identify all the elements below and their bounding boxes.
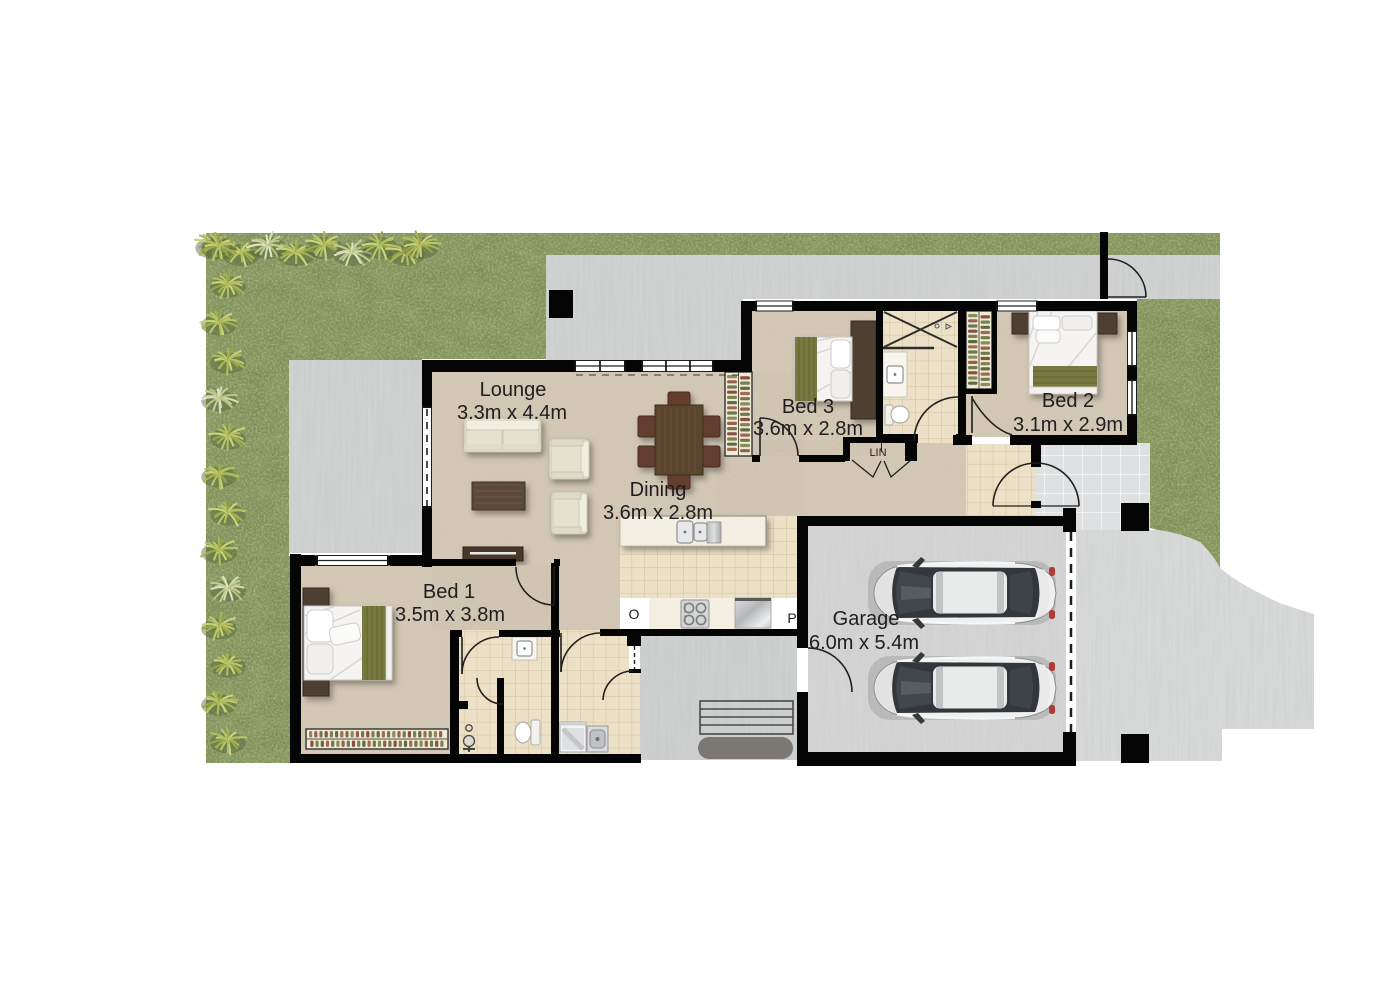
svg-text:3.6m x 2.8m: 3.6m x 2.8m [603, 502, 713, 524]
svg-text:Bed 1: Bed 1 [423, 581, 475, 603]
svg-text:3.1m x 2.9m: 3.1m x 2.9m [1013, 414, 1123, 436]
svg-text:P: P [787, 610, 796, 626]
svg-text:O: O [629, 606, 640, 622]
svg-text:3.3m x 4.4m: 3.3m x 4.4m [457, 402, 567, 424]
svg-text:Bed 2: Bed 2 [1042, 390, 1094, 412]
svg-text:Bed 3: Bed 3 [782, 396, 834, 418]
svg-text:Lounge: Lounge [480, 379, 547, 401]
svg-text:LIN: LIN [869, 447, 886, 459]
svg-text:6.0m x 5.4m: 6.0m x 5.4m [809, 632, 919, 654]
svg-text:Dining: Dining [630, 479, 687, 501]
svg-text:3.5m x 3.8m: 3.5m x 3.8m [395, 604, 505, 626]
svg-text:3.6m x 2.8m: 3.6m x 2.8m [753, 418, 863, 440]
svg-text:Garage: Garage [833, 608, 900, 630]
